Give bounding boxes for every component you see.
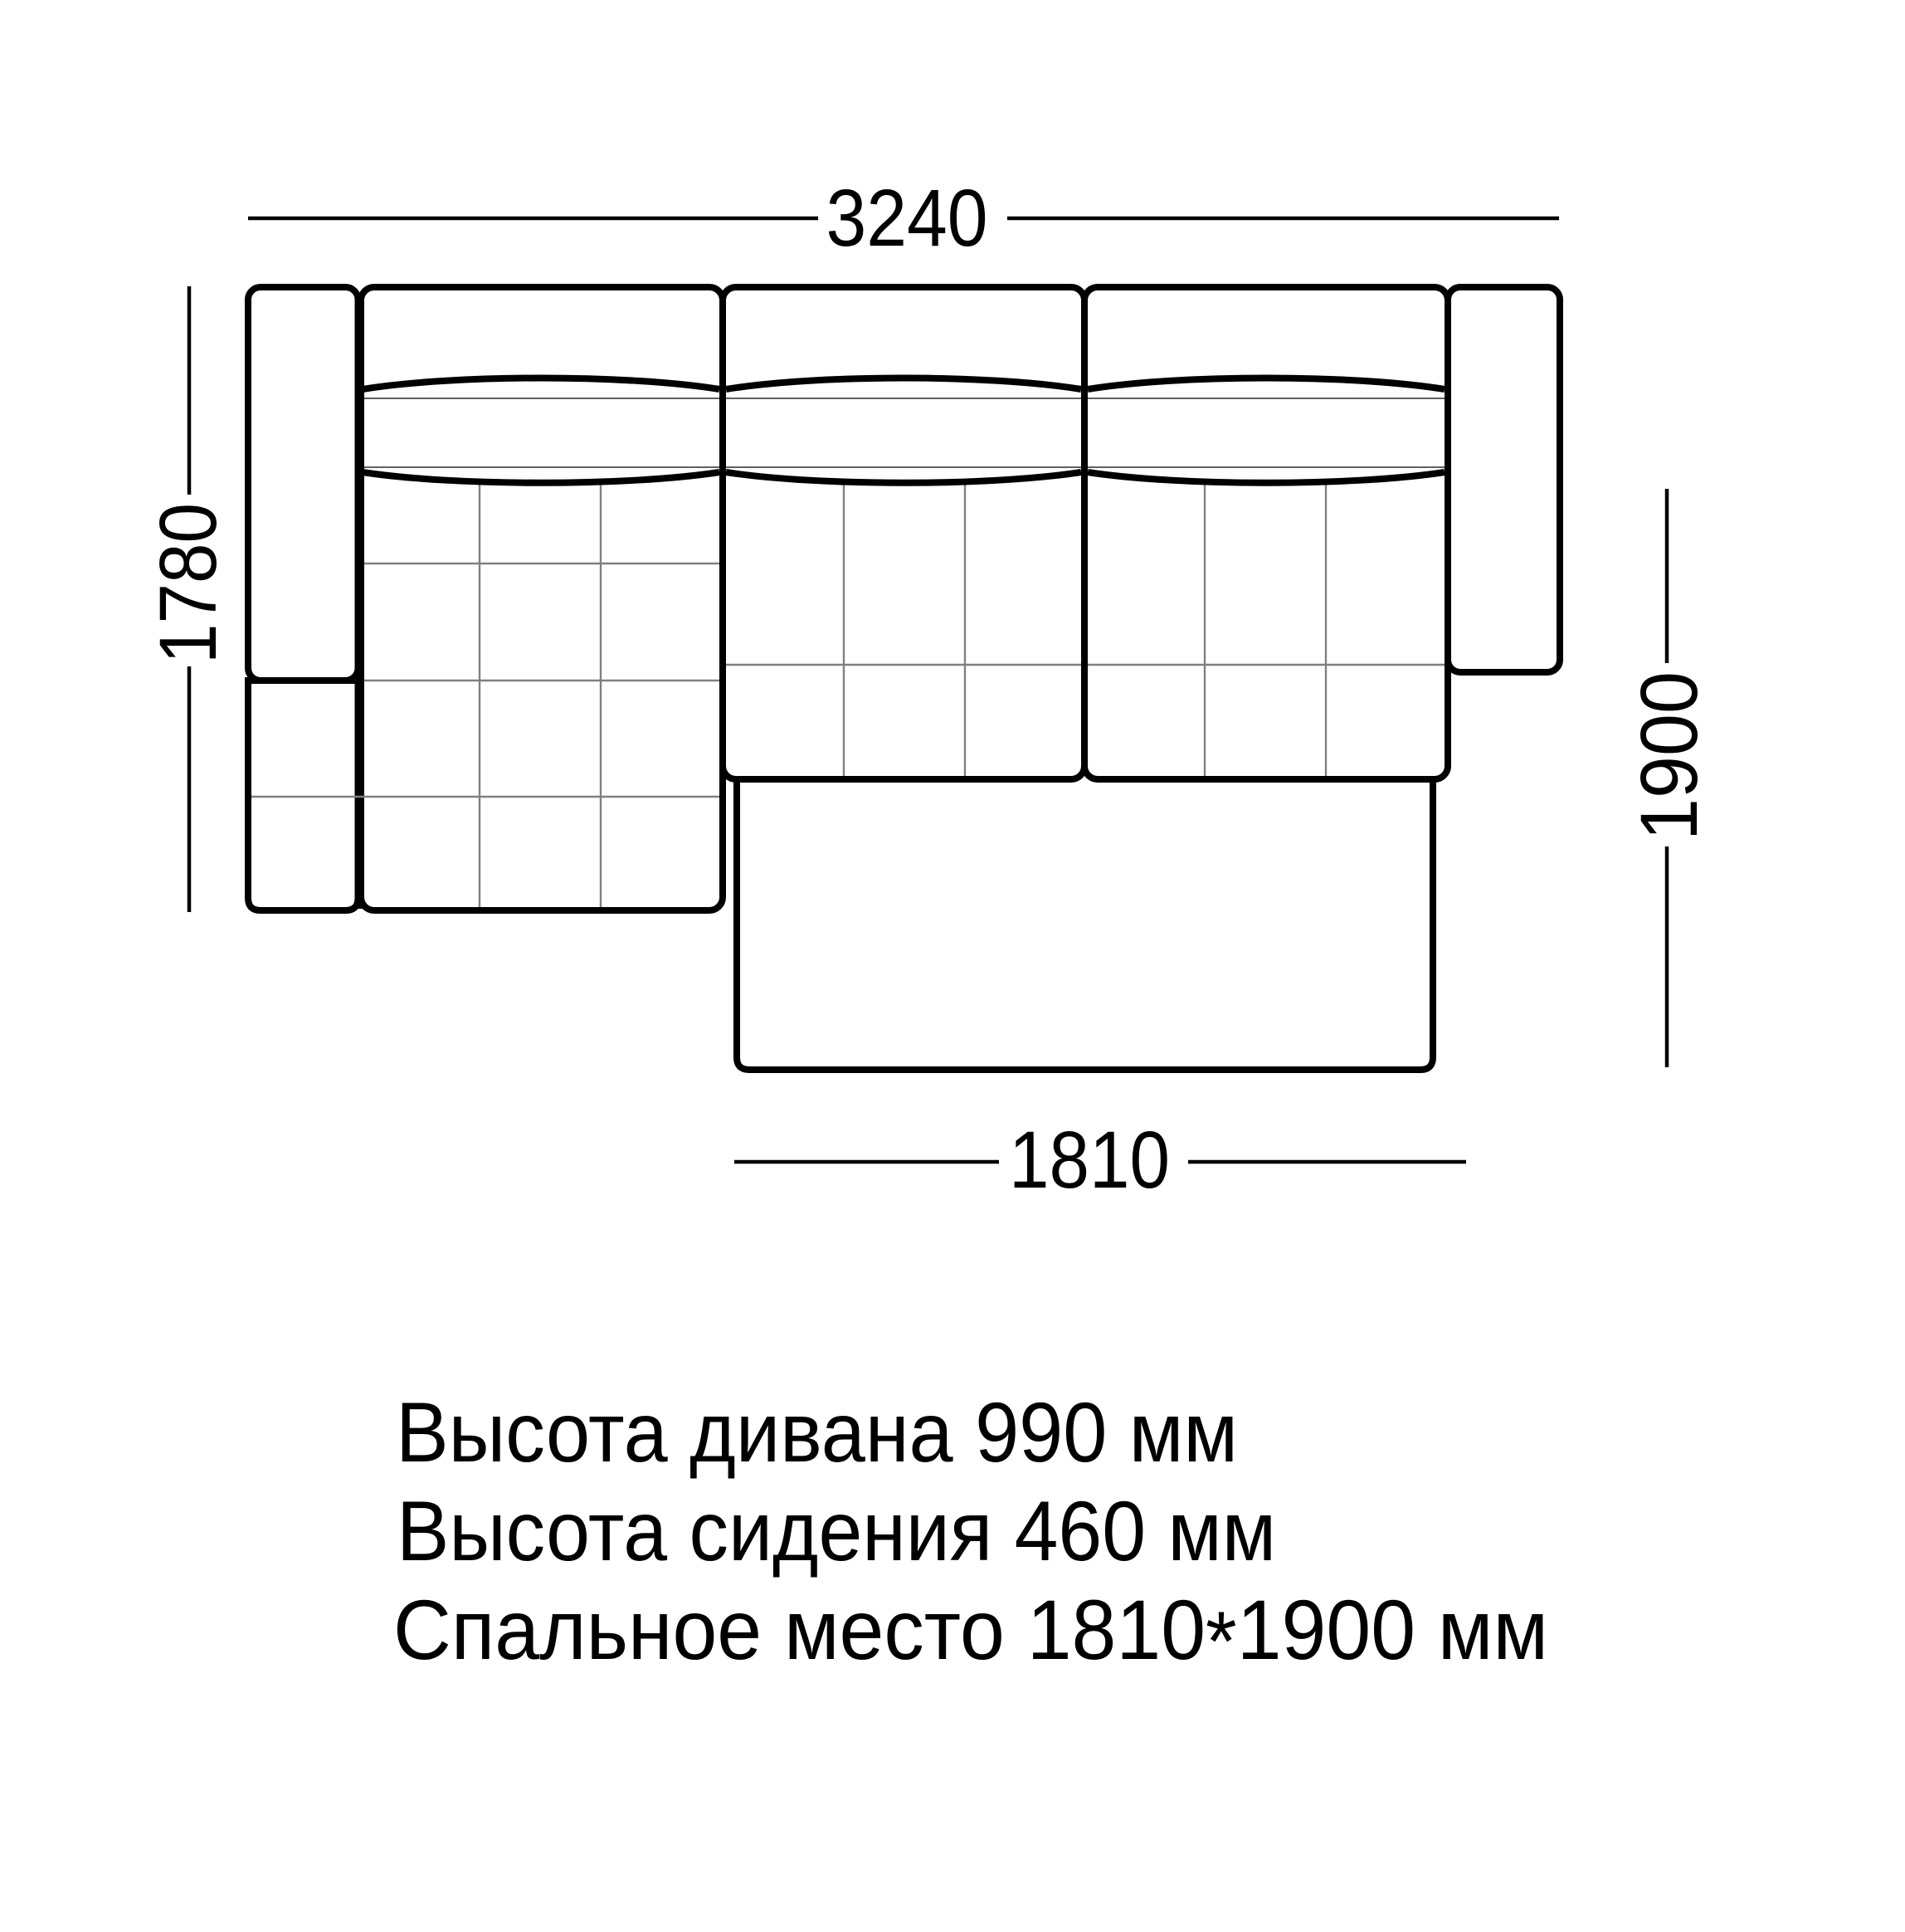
svg-text:Высота сидения 460 мм: Высота сидения 460 мм [397, 1484, 1276, 1578]
svg-text:Спальное место 1810*1900 мм: Спальное место 1810*1900 мм [393, 1583, 1548, 1689]
svg-text:Высота дивана 990 мм: Высота дивана 990 мм [396, 1385, 1238, 1480]
svg-text:1780: 1780 [143, 503, 233, 664]
svg-text:1900: 1900 [1624, 671, 1714, 841]
svg-text:1810: 1810 [1009, 1115, 1170, 1205]
svg-text:3240: 3240 [826, 173, 988, 263]
